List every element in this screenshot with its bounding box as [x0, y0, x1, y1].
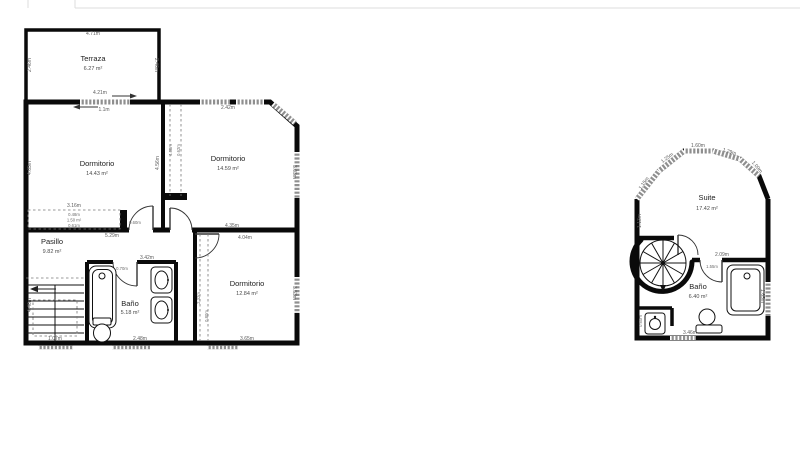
dim-label: 3.03m — [291, 165, 297, 179]
room-area-pasillo: 9.82 m² — [43, 249, 62, 255]
dim-label: 3.42m — [140, 255, 154, 261]
sink — [645, 313, 665, 334]
dim-label: 3.16m — [67, 203, 81, 209]
right-floor-plan: Suite 17.42 m² Baño 6.40 m² 1.60m 1.25m … — [632, 143, 768, 338]
room-label-bano: Baño — [121, 299, 139, 308]
staircase — [26, 278, 84, 343]
room-area-terraza: 6.27 m² — [84, 66, 103, 72]
room-area-dormitorio-1: 14.43 m² — [86, 171, 108, 177]
room-area-dormitorio-3: 12.84 m² — [236, 291, 258, 297]
room-area-bano-right: 6.40 m² — [689, 294, 708, 300]
dim-label: 0.61m — [68, 223, 80, 228]
room-label-dormitorio-3: Dormitorio — [230, 279, 265, 288]
floorplan-image: Terraza 6.27 m² Dormitorio 14.43 m² Dorm… — [0, 0, 800, 450]
room-label-dormitorio-1: Dormitorio — [80, 159, 115, 168]
room-area-dormitorio-2: 14.59 m² — [217, 166, 239, 172]
dim-label: 3.65m — [240, 336, 254, 342]
door-arc — [195, 234, 219, 258]
dim-label: 1.50 m² — [67, 218, 82, 223]
wardrobe-wall-stub — [120, 210, 127, 230]
sink — [151, 297, 172, 323]
dim-label: 2.46m — [27, 58, 33, 72]
dim-label: 4.21m — [93, 90, 107, 96]
dim-label: 1.65m — [759, 289, 765, 303]
dim-label: 4.35m — [225, 223, 239, 229]
dim-label: 2.09m — [715, 252, 729, 258]
dim-label: 4.56m — [155, 156, 161, 170]
dim-label: 3.46m — [683, 330, 697, 336]
door-arc — [678, 235, 698, 255]
sink — [151, 267, 172, 293]
dim-label: 0.48m — [68, 212, 80, 217]
toilet — [696, 309, 722, 333]
dim-label: 1.60m — [691, 143, 705, 149]
dim-label: 2.42m — [221, 105, 235, 111]
slide-arrow-left-head — [73, 105, 80, 110]
stair-direction-arrow — [30, 286, 38, 292]
room-label-terraza: Terraza — [80, 54, 106, 63]
window — [273, 104, 295, 123]
dim-label: 0.60m — [638, 315, 643, 327]
dim-label: 1.13m — [637, 214, 643, 228]
room-label-pasillo: Pasillo — [41, 237, 63, 246]
dim-label: 4.04m — [238, 235, 252, 241]
dim-label: 2.46m — [153, 58, 159, 72]
dim-label: 1.55m — [706, 264, 718, 269]
room-area-suite: 17.42 m² — [696, 206, 718, 212]
dorm2-wall-stub — [163, 193, 187, 200]
left-floor-plan: Terraza 6.27 m² Dormitorio 14.43 m² Dorm… — [26, 30, 297, 348]
toilet — [93, 318, 111, 342]
dim-label: 0.62m — [176, 144, 181, 156]
room-area-bano: 5.18 m² — [121, 310, 140, 316]
dim-extension-lines-dorm3 — [200, 234, 208, 341]
dim-label: 5.29m — [105, 233, 119, 239]
dim-label: 0.70m — [116, 266, 128, 271]
page-border-artifact — [28, 0, 800, 8]
floorplan-page: Terraza 6.27 m² Dormitorio 14.43 m² Dorm… — [0, 0, 800, 450]
dim-label: 4.46m — [27, 298, 33, 312]
dim-label: 4.68m — [168, 144, 173, 156]
dim-label: 4.71m — [86, 31, 100, 37]
door-arc — [129, 206, 153, 230]
bathtub — [727, 265, 764, 315]
dim-label: 2.32m — [196, 292, 201, 304]
door-arc — [170, 208, 192, 230]
dim-label: 1.07m — [48, 336, 62, 342]
dim-label: 3.53m — [291, 286, 297, 300]
slide-arrow-right-head — [130, 94, 137, 99]
dim-label: 4.65m — [27, 161, 33, 175]
dim-label: 0.80m — [204, 310, 209, 322]
dim-label: 2.48m — [133, 336, 147, 342]
dim-label: 1.1m — [98, 107, 109, 113]
room-label-bano-right: Baño — [689, 282, 707, 291]
dim-label: 0.60m — [129, 220, 141, 225]
room-label-dormitorio-2: Dormitorio — [211, 154, 246, 163]
room-label-suite: Suite — [698, 193, 715, 202]
